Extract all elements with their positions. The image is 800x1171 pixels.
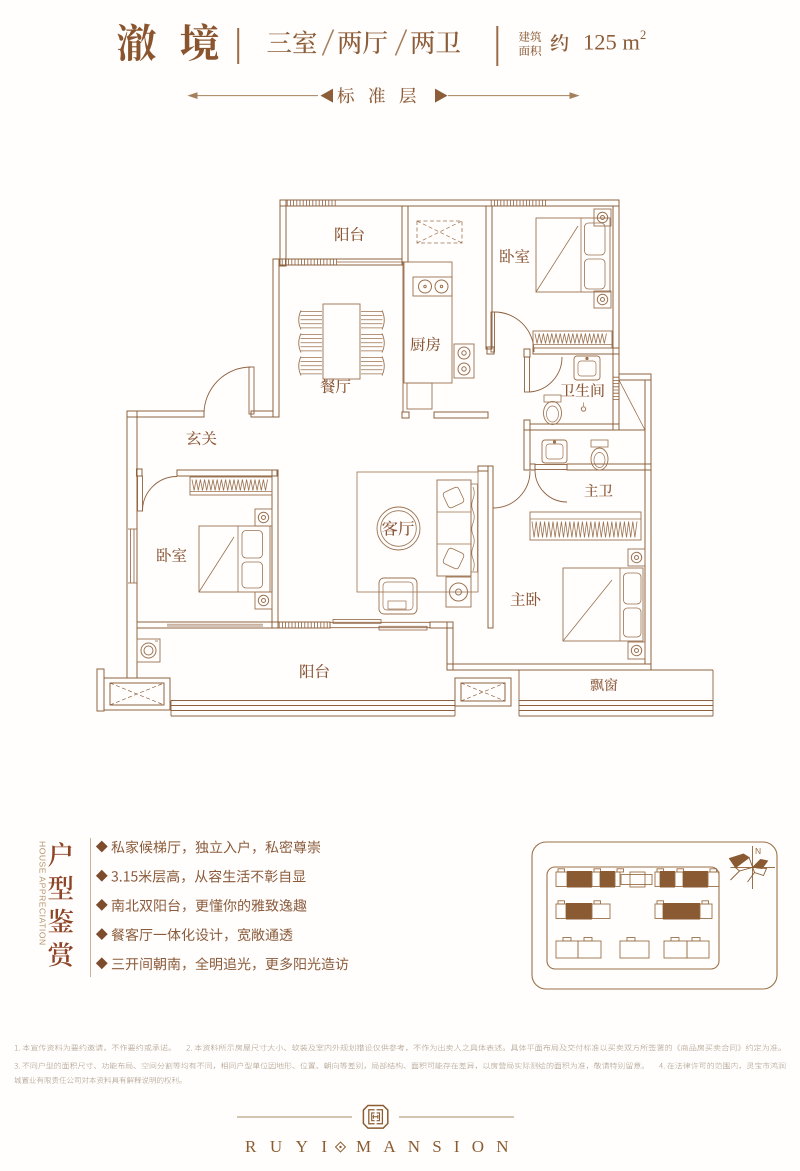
svg-text:N: N <box>755 846 761 856</box>
svg-text:RUYI: RUYI <box>245 1137 341 1156</box>
svg-text:HOUSE APPRECIATION: HOUSE APPRECIATION <box>38 841 48 946</box>
svg-text:125 m: 125 m <box>583 30 640 55</box>
svg-text:2: 2 <box>640 28 646 42</box>
svg-text:MANSION: MANSION <box>356 1137 521 1156</box>
